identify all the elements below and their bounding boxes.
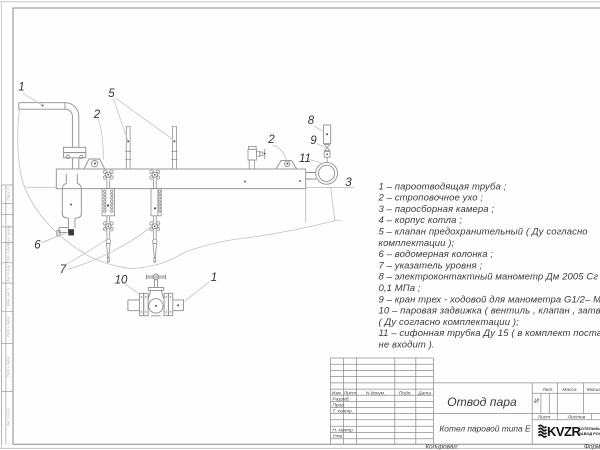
- svg-text:Справ. N: Справ. N: [7, 187, 11, 201]
- svg-text:5: 5: [108, 88, 115, 100]
- svg-text:9 – кран трех - ходовой для м: 9 – кран трех - ходовой для манометра G1…: [379, 294, 600, 305]
- svg-text:Подп. и дата: Подп. и дата: [7, 317, 11, 337]
- svg-text:9: 9: [310, 135, 317, 147]
- svg-text:Разраб.: Разраб.: [332, 396, 349, 402]
- svg-text:Инв. N подл.: Инв. N подл.: [7, 408, 11, 427]
- svg-text:1: 1: [211, 272, 217, 284]
- svg-text:8 – электроконтактный манометр: 8 – электроконтактный манометр Дм 2005 С…: [379, 272, 600, 283]
- svg-text:Подп. и дата: Подп. и дата: [7, 243, 11, 263]
- svg-text:7: 7: [60, 264, 67, 276]
- svg-text:Листов: Листов: [567, 414, 586, 420]
- svg-text:6 – водомерная колонка ;: 6 – водомерная колонка ;: [379, 249, 494, 260]
- svg-text:Изм.: Изм.: [332, 390, 342, 396]
- svg-text:Лист: Лист: [537, 414, 550, 420]
- svg-text:Котел паровой типа Е: Котел паровой типа Е: [439, 423, 531, 433]
- svg-text:3 – паросборная камера ;: 3 – паросборная камера ;: [379, 204, 495, 215]
- svg-text:Т. контр.: Т. контр.: [332, 409, 353, 415]
- svg-text:7 – указатель уровня ;: 7 – указатель уровня ;: [379, 260, 483, 271]
- svg-text:Формат А3: Формат А3: [584, 443, 600, 450]
- svg-text:Взам. инв. N: Взам. инв. N: [7, 287, 11, 306]
- svg-text:Масштаб: Масштаб: [587, 387, 600, 393]
- svg-text:5 – клапан предохранительный: 5 – клапан предохранительный ( Ду соглас…: [379, 227, 588, 238]
- svg-text:10 – паровая задвижка ( вент: 10 – паровая задвижка ( вентиль , клапан…: [379, 306, 600, 317]
- svg-text:11 – сифонная трубка Ду 15: 11 – сифонная трубка Ду 15 ( в комплект …: [379, 328, 600, 339]
- svg-text:Лит.: Лит.: [541, 387, 553, 393]
- svg-text:ЗАВОД РОССИИ: ЗАВОД РОССИИ: [579, 431, 600, 436]
- svg-text:10: 10: [115, 275, 128, 287]
- svg-text:N докум.: N докум.: [366, 390, 385, 396]
- svg-text:Масса: Масса: [562, 387, 577, 393]
- svg-text:11: 11: [299, 153, 311, 165]
- svg-text:KVZR: KVZR: [547, 424, 582, 439]
- svg-text:Инв. N дубл.: Инв. N дубл.: [7, 264, 11, 283]
- svg-text:1: 1: [18, 82, 24, 94]
- svg-text:Подп. и дата: Подп. и дата: [7, 357, 11, 377]
- svg-text:Перв. примен.: Перв. примен.: [7, 224, 11, 245]
- svg-text:0,1 МПа ;: 0,1 МПа ;: [379, 283, 421, 294]
- svg-text:2: 2: [93, 109, 101, 121]
- svg-text:Отвод пара: Отвод пара: [447, 395, 517, 409]
- svg-text:Н. контр.: Н. контр.: [332, 427, 354, 433]
- svg-text:2 – строповочное ухо ;: 2 – строповочное ухо ;: [378, 193, 484, 204]
- svg-text:И: И: [534, 398, 539, 405]
- svg-text:6: 6: [34, 240, 41, 252]
- svg-text:4 – корпус котла ;: 4 – корпус котла ;: [379, 215, 463, 226]
- svg-text:Копировал:: Копировал:: [425, 443, 458, 450]
- svg-text:Утв.: Утв.: [332, 434, 343, 440]
- svg-text:1 – пароотводящая труба ;: 1 – пароотводящая труба ;: [379, 181, 507, 192]
- svg-text:( Ду согласно комплектации );: ( Ду согласно комплектации );: [379, 317, 520, 328]
- svg-text:Лист: Лист: [343, 390, 356, 396]
- svg-text:2: 2: [267, 134, 275, 146]
- svg-text:Дата: Дата: [417, 390, 431, 396]
- svg-text:Подп.: Подп.: [399, 390, 412, 396]
- svg-text:8: 8: [308, 115, 315, 127]
- svg-text:3: 3: [345, 177, 352, 189]
- svg-text:не входит ).: не входит ).: [379, 340, 435, 351]
- svg-text:Пров.: Пров.: [332, 403, 345, 409]
- svg-text:комплектации );: комплектации );: [379, 238, 455, 249]
